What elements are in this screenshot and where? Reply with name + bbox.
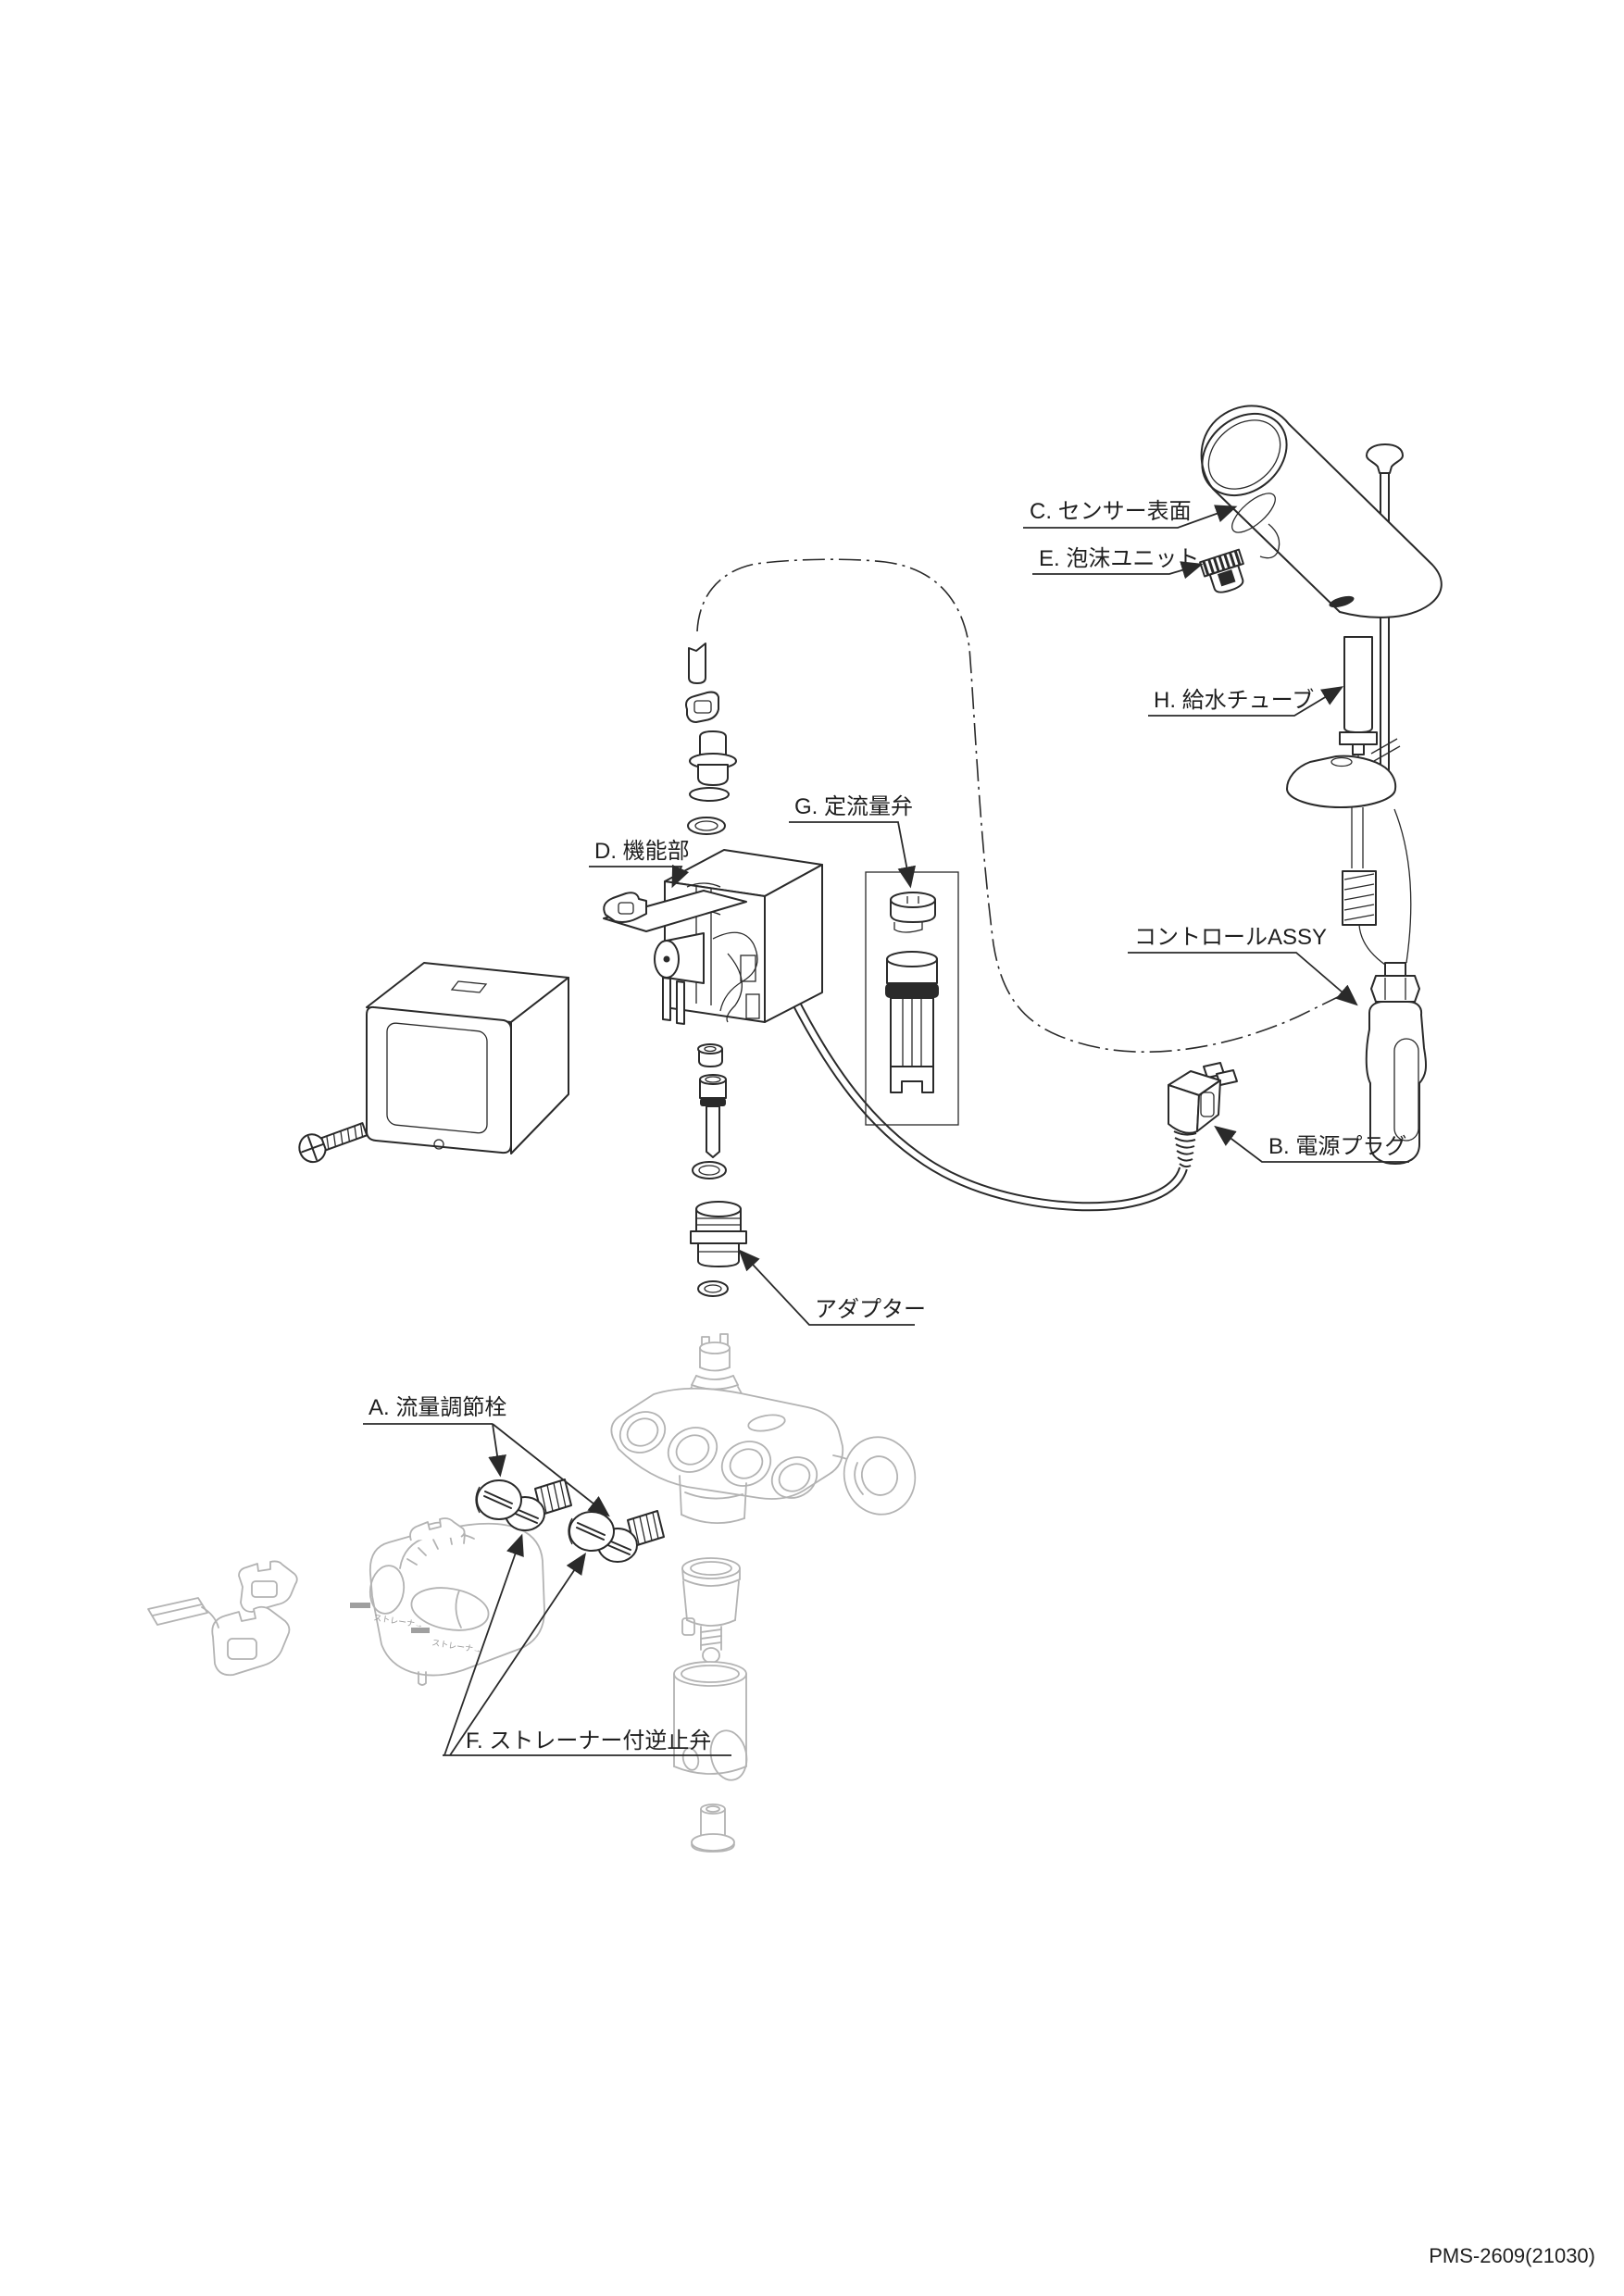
- cup-housing: [674, 1662, 751, 1783]
- solenoid-body: [655, 933, 704, 983]
- label-supply-tube: H. 給水チューブ: [1148, 688, 1341, 716]
- exploded-parts-diagram: ストレーナ→ ストレーナ→: [0, 0, 1624, 2296]
- cover-box: [367, 963, 568, 1154]
- bracket-clip-large: [148, 1598, 289, 1675]
- label-aerator-unit: E. 泡沫ユニット: [1032, 546, 1200, 574]
- adapter-part: [691, 1202, 746, 1267]
- poppet-valve-part: [690, 731, 736, 785]
- flow-adjust-pair-1: [476, 1479, 571, 1530]
- o-ring-bottom: [698, 1281, 728, 1296]
- doc-number: PMS-2609(21030): [1429, 2244, 1595, 2267]
- flow-valve-cartridge: [885, 952, 939, 1092]
- label-text-control-assy: コントロールASSY: [1134, 925, 1327, 950]
- label-text-check-valve: F. ストレーナー付逆止弁: [466, 1728, 711, 1753]
- escutcheon: [1287, 756, 1395, 807]
- body-casting: ストレーナ→ ストレーナ→: [350, 1518, 544, 1685]
- plunger-part: [700, 1075, 726, 1157]
- faucet-shank: [1343, 807, 1411, 968]
- label-sensor-surface: C. センサー表面: [1023, 499, 1234, 528]
- function-unit: [604, 850, 822, 1024]
- flow-adjust-pair-2: [568, 1511, 664, 1562]
- o-ring-top: [688, 817, 725, 834]
- faucet-spout-assembly: [1186, 397, 1442, 1164]
- mounting-screw: [295, 1117, 369, 1167]
- o-ring-mid: [693, 1162, 726, 1179]
- grommet-part: [698, 1044, 722, 1067]
- label-text-adapter: アダプター: [815, 1297, 926, 1322]
- flow-valve-part: [891, 892, 935, 932]
- clip-part: [686, 693, 718, 722]
- power-cord: [793, 996, 1183, 1206]
- label-text-aerator-unit: E. 泡沫ユニット: [1039, 546, 1199, 571]
- valve-body-reference: ストレーナ→ ストレーナ→: [148, 1334, 924, 1852]
- supply-tube: [1340, 637, 1377, 775]
- manifold-block: [611, 1389, 923, 1523]
- aerator-unit: [1200, 550, 1250, 597]
- pin-part: [689, 643, 706, 683]
- label-text-supply-tube: H. 給水チューブ: [1154, 688, 1314, 713]
- function-unit-parts-column: [604, 643, 822, 1296]
- label-text-power-plug: B. 電源プラグ: [1268, 1134, 1406, 1159]
- check-valve-cartridge: [682, 1558, 740, 1663]
- label-adapter: アダプター: [741, 1252, 926, 1325]
- label-text-flow-valve: G. 定流量弁: [794, 794, 913, 819]
- side-clip: [604, 892, 646, 922]
- flow-valve-box: [866, 872, 958, 1125]
- bracket-clip-small: [239, 1561, 297, 1612]
- power-plug: [1168, 1063, 1237, 1167]
- label-text-flow-adjust: A. 流量調節栓: [369, 1395, 506, 1420]
- label-control-assy: コントロールASSY: [1128, 925, 1355, 1004]
- bottom-fitting: [692, 1804, 734, 1852]
- washer-part: [690, 788, 729, 801]
- label-text-function-unit: D. 機能部: [594, 839, 690, 864]
- label-text-sensor-surface: C. センサー表面: [1030, 499, 1192, 524]
